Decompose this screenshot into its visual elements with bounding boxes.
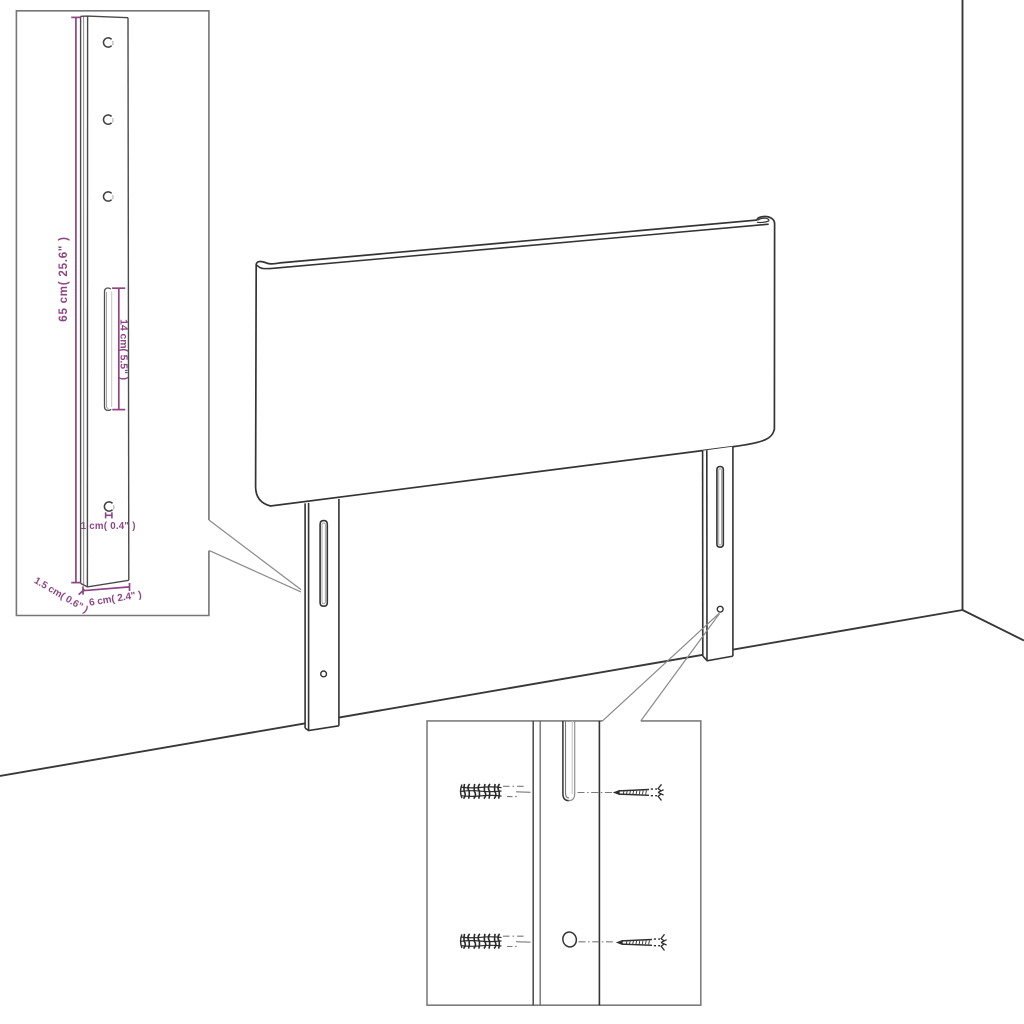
- svg-text:14 cm( 5.5" ): 14 cm( 5.5" ): [118, 319, 130, 380]
- svg-text:6 cm( 2.4" ): 6 cm( 2.4" ): [88, 590, 142, 609]
- svg-text:65 cm( 25.6" ): 65 cm( 25.6" ): [58, 236, 70, 321]
- svg-text:1 cm( 0.4" ): 1 cm( 0.4" ): [81, 521, 136, 532]
